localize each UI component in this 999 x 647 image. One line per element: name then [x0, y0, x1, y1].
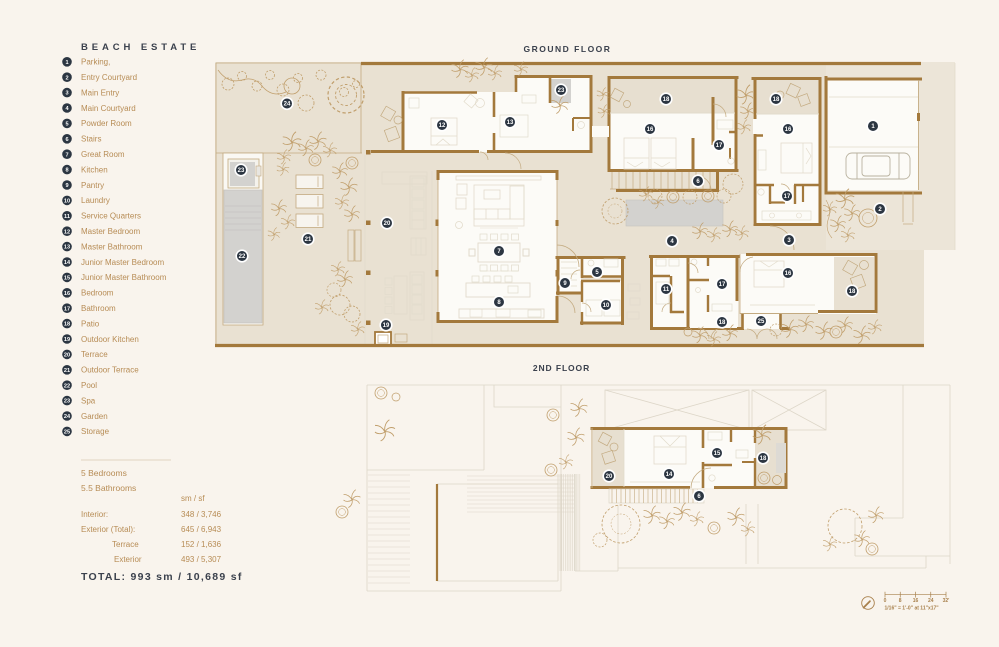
svg-text:6: 6 [65, 137, 68, 143]
svg-text:Powder Room: Powder Room [81, 119, 132, 128]
svg-text:Entry Courtyard: Entry Courtyard [81, 73, 137, 82]
svg-text:3: 3 [65, 91, 68, 97]
svg-text:Terrace: Terrace [81, 350, 108, 359]
svg-text:Main Courtyard: Main Courtyard [81, 104, 136, 113]
svg-text:Bedroom: Bedroom [81, 289, 114, 298]
svg-text:8: 8 [65, 168, 68, 174]
svg-text:32': 32' [943, 598, 950, 604]
svg-text:Pantry: Pantry [81, 181, 104, 190]
svg-text:24: 24 [928, 598, 934, 604]
svg-text:12: 12 [439, 123, 446, 129]
svg-text:Garden: Garden [81, 412, 108, 421]
svg-text:Exterior: Exterior [114, 555, 142, 564]
svg-text:5 Bedrooms: 5 Bedrooms [81, 468, 127, 478]
svg-text:Main Entry: Main Entry [81, 88, 119, 97]
svg-text:645 / 6,943: 645 / 6,943 [181, 525, 222, 534]
svg-text:10: 10 [603, 303, 610, 309]
svg-text:Laundry: Laundry [81, 196, 110, 205]
svg-text:23: 23 [238, 168, 245, 174]
svg-text:11: 11 [64, 214, 70, 220]
svg-text:20: 20 [64, 353, 70, 359]
svg-text:348 / 3,746: 348 / 3,746 [181, 510, 222, 519]
svg-text:15: 15 [714, 451, 721, 457]
svg-text:23: 23 [64, 399, 70, 405]
svg-text:16: 16 [913, 598, 919, 604]
svg-text:Kitchen: Kitchen [81, 165, 108, 174]
svg-text:25: 25 [64, 430, 70, 436]
svg-text:18: 18 [760, 456, 767, 462]
svg-text:Patio: Patio [81, 319, 100, 328]
svg-text:13: 13 [507, 120, 514, 126]
svg-text:Storage: Storage [81, 427, 110, 436]
svg-text:Parking,: Parking, [81, 58, 110, 67]
svg-text:17: 17 [64, 306, 70, 312]
svg-text:14: 14 [666, 472, 673, 478]
svg-text:Master Bathroom: Master Bathroom [81, 242, 143, 251]
svg-text:Pool: Pool [81, 381, 97, 390]
svg-text:24: 24 [284, 102, 291, 108]
svg-text:10: 10 [64, 199, 70, 205]
svg-text:16: 16 [785, 127, 792, 133]
svg-text:1/16" = 1'-0" at 11"x17": 1/16" = 1'-0" at 11"x17" [885, 606, 940, 612]
svg-text:17: 17 [716, 143, 723, 149]
svg-text:15: 15 [64, 276, 70, 282]
svg-text:22: 22 [239, 254, 246, 260]
svg-text:8: 8 [899, 598, 902, 604]
svg-text:12: 12 [64, 229, 70, 235]
svg-text:24: 24 [64, 414, 71, 420]
svg-text:Exterior (Total):: Exterior (Total): [81, 525, 135, 534]
svg-text:19: 19 [383, 323, 390, 329]
svg-text:Outdoor Kitchen: Outdoor Kitchen [81, 335, 139, 344]
svg-text:Outdoor Terrace: Outdoor Terrace [81, 366, 139, 375]
svg-text:5.5 Bathrooms: 5.5 Bathrooms [81, 483, 136, 493]
svg-text:5: 5 [65, 122, 68, 128]
svg-text:Interior:: Interior: [81, 510, 108, 519]
svg-text:493 / 5,307: 493 / 5,307 [181, 555, 222, 564]
svg-text:16: 16 [64, 291, 70, 297]
svg-text:20: 20 [384, 221, 391, 227]
svg-text:18: 18 [719, 320, 726, 326]
svg-text:Spa: Spa [81, 396, 96, 405]
svg-text:Terrace: Terrace [112, 540, 139, 549]
svg-text:Great Room: Great Room [81, 150, 125, 159]
svg-text:18: 18 [773, 97, 780, 103]
svg-text:Master Bedroom: Master Bedroom [81, 227, 140, 236]
svg-text:sm / sf: sm / sf [181, 494, 205, 503]
svg-text:Junior Master Bedroom: Junior Master Bedroom [81, 258, 164, 267]
svg-text:16: 16 [647, 127, 654, 133]
svg-text:Bathroom: Bathroom [81, 304, 116, 313]
svg-text:18: 18 [663, 97, 670, 103]
svg-text:17: 17 [784, 194, 791, 200]
svg-text:18: 18 [64, 322, 70, 328]
svg-text:0: 0 [884, 598, 887, 604]
svg-text:23: 23 [558, 88, 565, 94]
svg-text:17: 17 [719, 282, 726, 288]
svg-text:152 / 1,636: 152 / 1,636 [181, 540, 222, 549]
svg-text:2: 2 [65, 75, 68, 81]
svg-text:11: 11 [663, 287, 670, 293]
svg-text:19: 19 [64, 337, 70, 343]
svg-text:9: 9 [65, 183, 68, 189]
svg-text:TOTAL: 993 sm / 10,689 sf: TOTAL: 993 sm / 10,689 sf [81, 571, 243, 583]
svg-text:21: 21 [305, 237, 312, 243]
svg-text:1: 1 [65, 60, 68, 66]
svg-text:14: 14 [64, 260, 71, 266]
svg-text:BEACH ESTATE: BEACH ESTATE [81, 42, 200, 53]
svg-text:7: 7 [65, 152, 68, 158]
svg-text:22: 22 [64, 383, 70, 389]
svg-text:GROUND FLOOR: GROUND FLOOR [524, 44, 612, 54]
svg-text:25: 25 [758, 319, 765, 325]
svg-text:20: 20 [606, 474, 613, 480]
svg-text:Service Quarters: Service Quarters [81, 212, 141, 221]
svg-text:16: 16 [785, 271, 792, 277]
svg-text:Junior Master Bathroom: Junior Master Bathroom [81, 273, 167, 282]
svg-text:Stairs: Stairs [81, 135, 101, 144]
svg-text:21: 21 [64, 368, 70, 374]
svg-text:2ND FLOOR: 2ND FLOOR [533, 363, 590, 373]
svg-text:13: 13 [64, 245, 70, 251]
svg-text:18: 18 [849, 289, 856, 295]
